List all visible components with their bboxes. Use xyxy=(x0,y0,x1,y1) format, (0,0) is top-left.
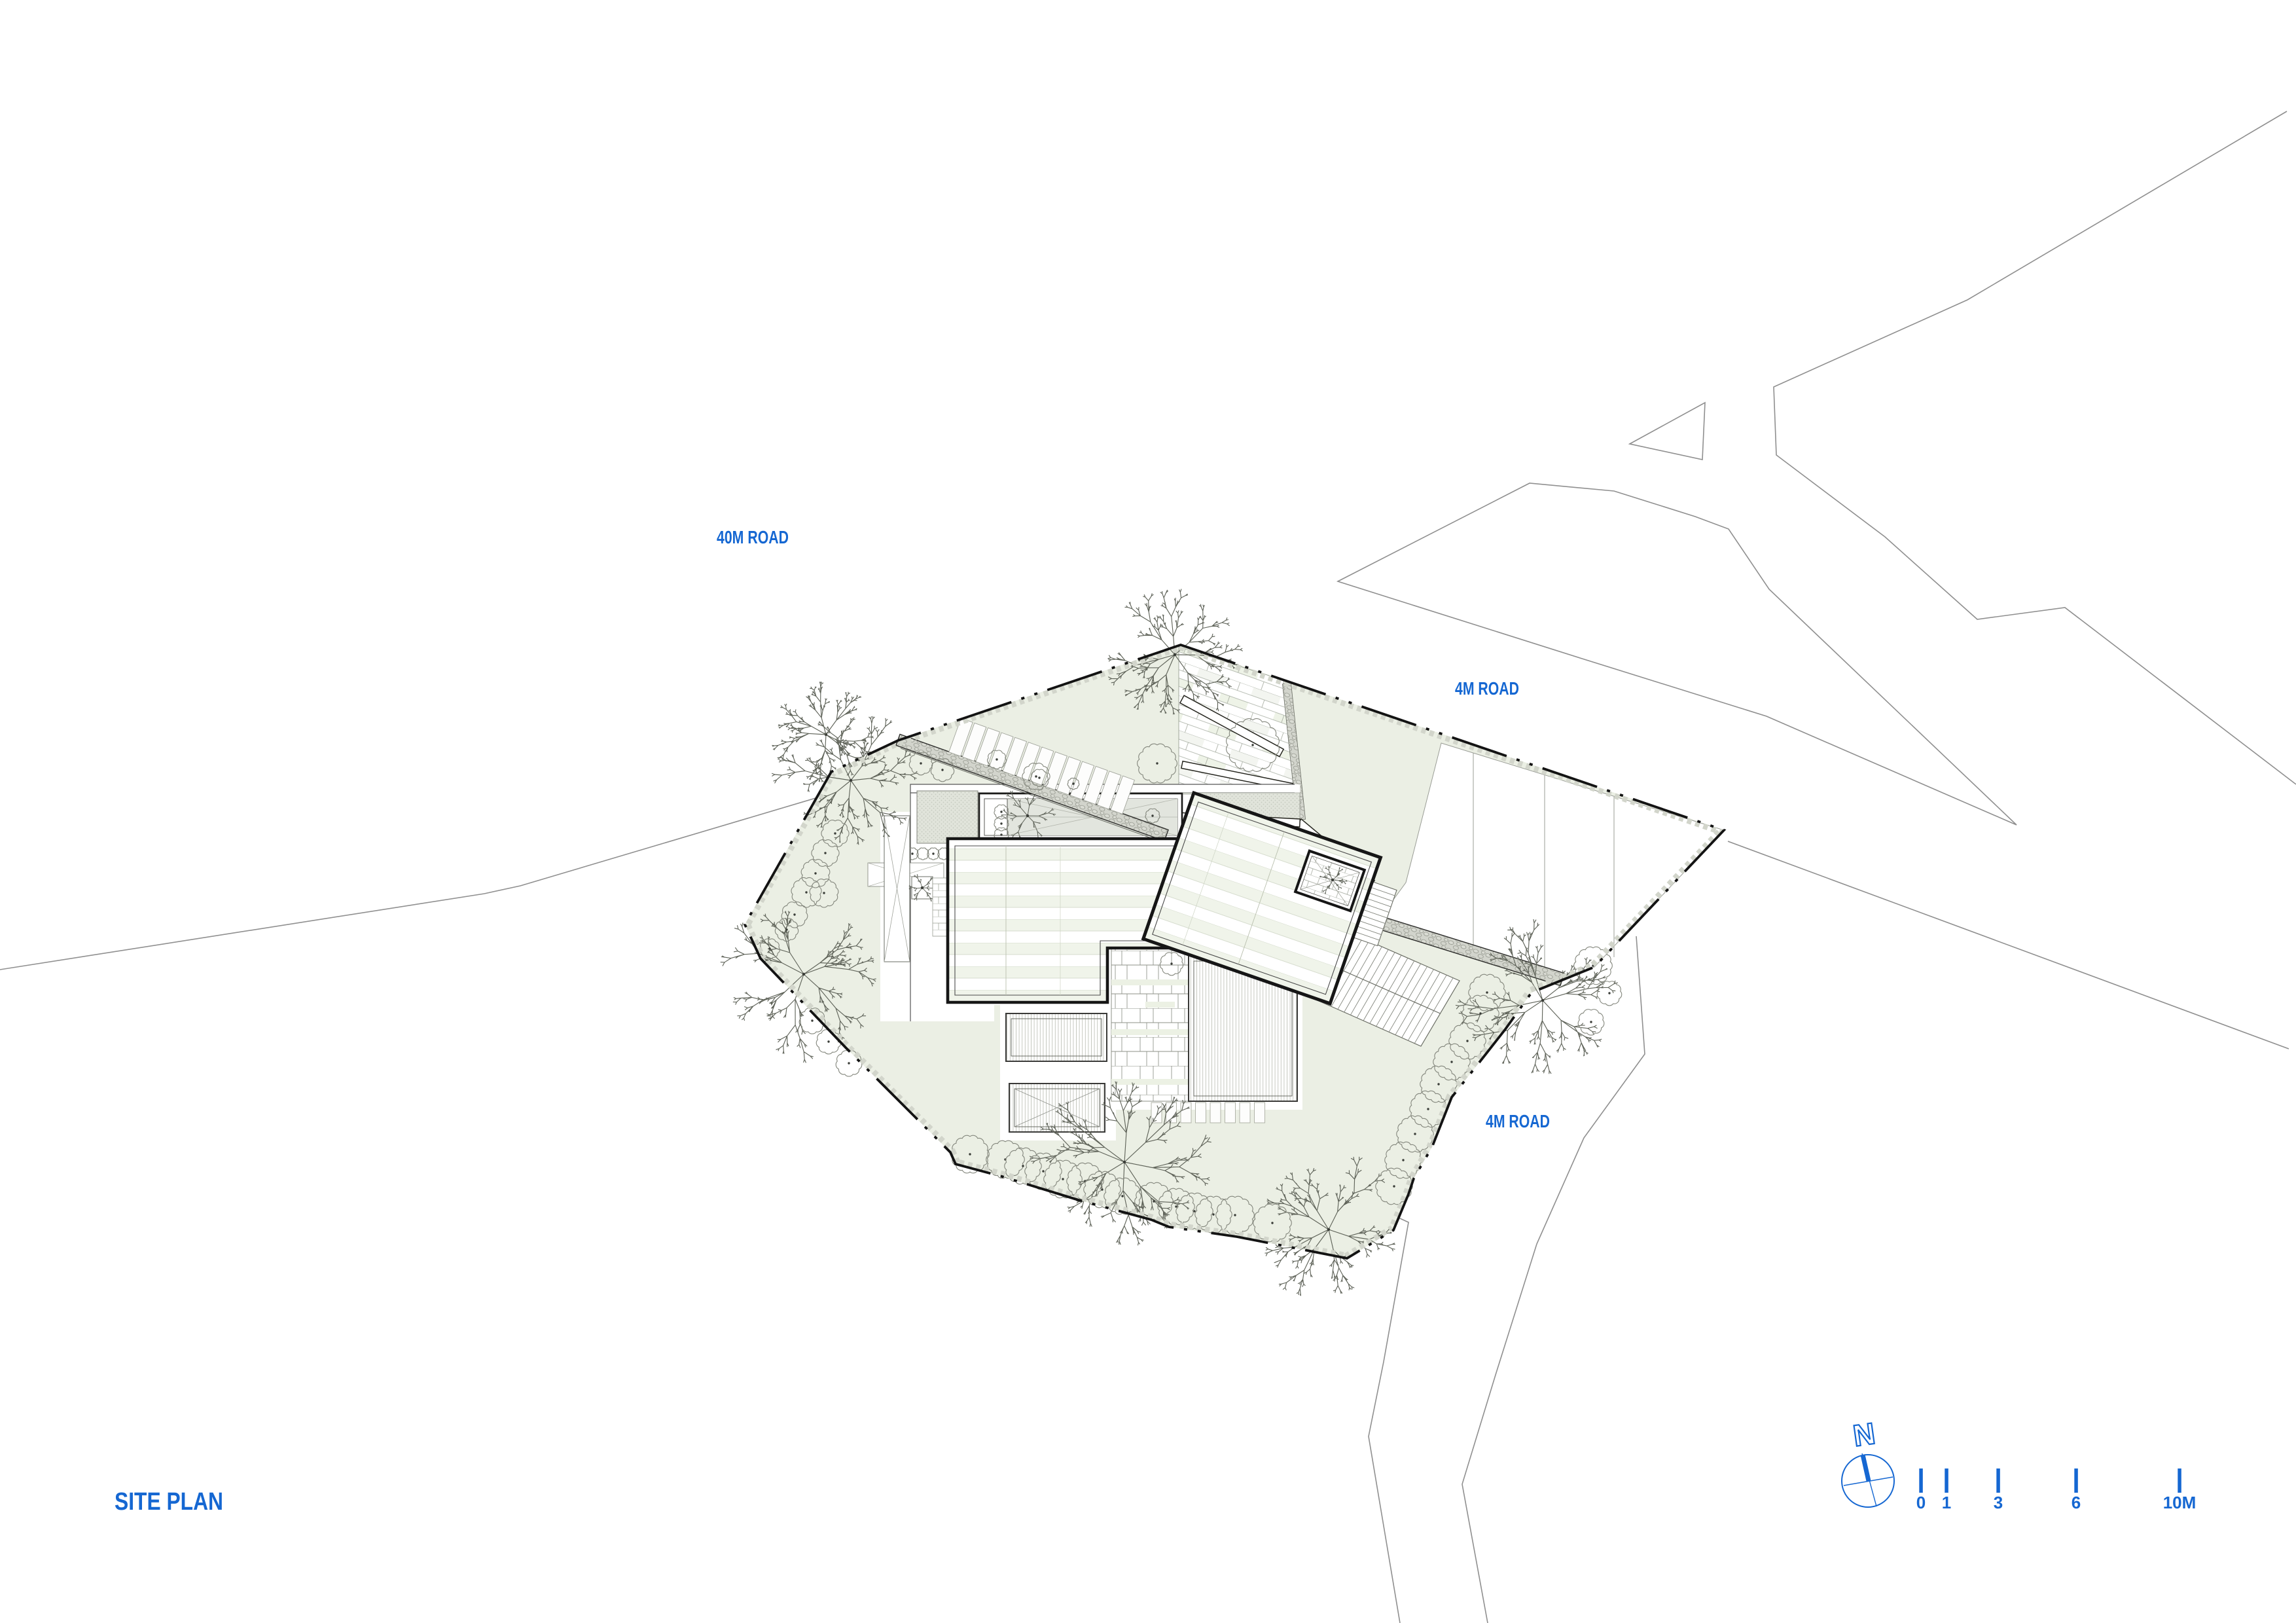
svg-text:SITE PLAN: SITE PLAN xyxy=(115,1488,223,1516)
svg-text:1: 1 xyxy=(1942,1493,1951,1512)
svg-text:0: 0 xyxy=(1916,1493,1926,1512)
svg-text:3: 3 xyxy=(1994,1493,2003,1512)
svg-text:10M: 10M xyxy=(2163,1493,2197,1512)
svg-text:6: 6 xyxy=(2072,1493,2081,1512)
svg-text:40M ROAD: 40M ROAD xyxy=(717,527,789,547)
svg-text:4M ROAD: 4M ROAD xyxy=(1486,1111,1550,1131)
svg-text:4M ROAD: 4M ROAD xyxy=(1455,678,1519,699)
